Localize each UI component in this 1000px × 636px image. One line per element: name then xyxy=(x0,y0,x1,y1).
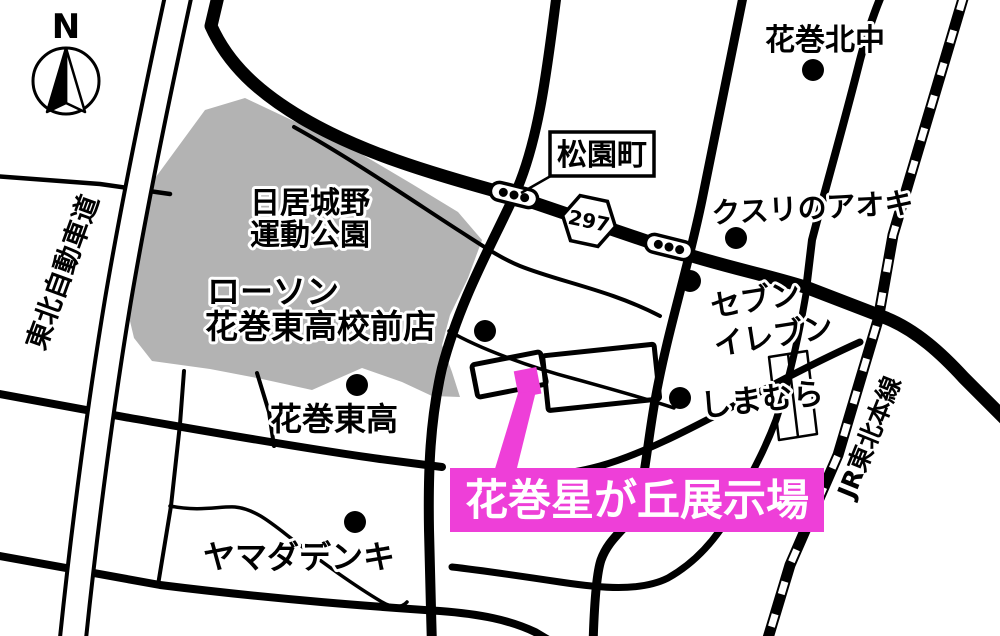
traffic-signal-1 xyxy=(489,180,540,209)
map-canvas: 297 日居城野 運動公園 ローソン 花巻東高校前店 花巻東高 ヤマダデンキ 花… xyxy=(0,0,1000,636)
junior-high-label: 花巻北中 xyxy=(765,23,885,58)
school-east-label: 花巻東高 xyxy=(270,400,398,438)
lawson-label-line1: ローソン xyxy=(207,272,339,311)
traffic-signal-2 xyxy=(644,232,695,261)
dot-seven-eleven xyxy=(679,270,701,292)
expressway-label: 東北自動車道 xyxy=(20,191,105,354)
yamada-label: ヤマダデンキ xyxy=(203,538,395,576)
dot-school-east xyxy=(346,374,368,396)
matsuzono-box: 松園町 xyxy=(521,132,654,193)
dot-kusuri-aoki xyxy=(725,227,747,249)
compass: N xyxy=(33,7,99,114)
matsuzono-label: 松園町 xyxy=(557,138,647,173)
road-west-vertical-2 xyxy=(158,371,184,585)
destination-label: 花巻星が丘展示場 xyxy=(465,476,809,526)
park-label-line2: 運動公園 xyxy=(250,218,370,253)
dot-shimamura xyxy=(669,387,691,409)
lawson-label-line2: 花巻東高校前店 xyxy=(205,307,436,346)
dot-lawson xyxy=(474,320,496,342)
dot-junior-high xyxy=(802,59,824,81)
dot-yamada xyxy=(344,511,366,533)
route-297-sign: 297 xyxy=(558,193,620,249)
north-label: N xyxy=(52,7,80,47)
destination-banner: 花巻星が丘展示場 xyxy=(450,468,824,532)
shimamura-label: しまむら xyxy=(698,376,825,425)
site-pointer-wedge xyxy=(494,391,536,472)
kusuri-aoki-label: クスリのアオキ xyxy=(711,186,915,231)
park-label-line1: 日居城野 xyxy=(250,186,370,221)
